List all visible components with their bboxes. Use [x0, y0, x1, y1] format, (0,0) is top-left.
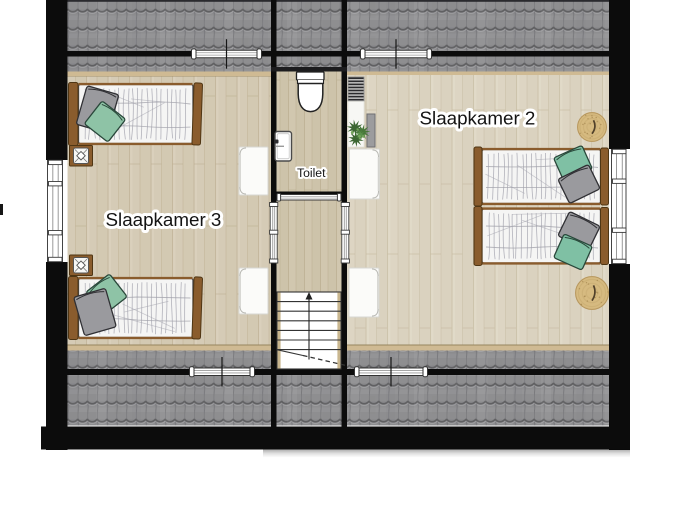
svg-text:Slaapkamer 2: Slaapkamer 2 [420, 108, 536, 129]
svg-text:Slaapkamer 3: Slaapkamer 3 [106, 209, 222, 230]
svg-text:Toilet: Toilet [297, 166, 326, 180]
